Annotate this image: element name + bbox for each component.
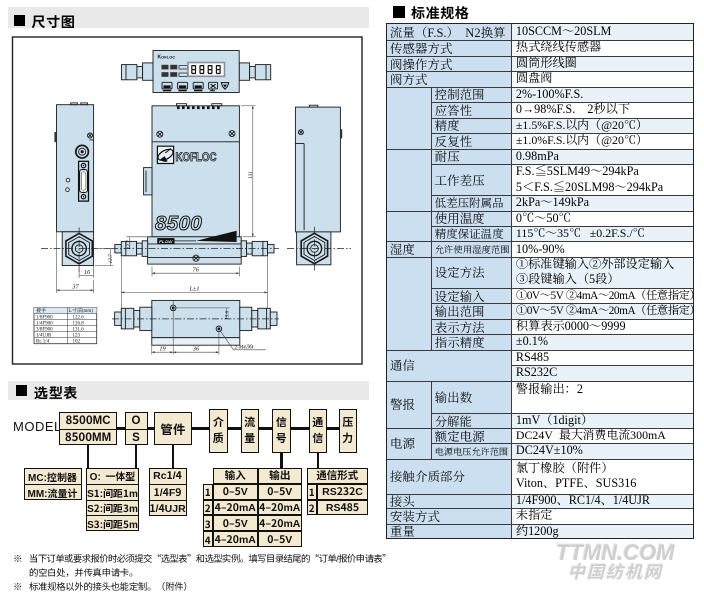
svg-text:12.7: 12.7	[126, 240, 132, 249]
svg-text:37: 37	[71, 283, 79, 290]
svg-text:12.7: 12.7	[108, 254, 114, 263]
svg-text:36: 36	[192, 345, 200, 352]
svg-text:接手: 接手	[36, 307, 46, 314]
svg-text:1/4F900: 1/4F900	[36, 321, 53, 326]
svg-text:131: 131	[248, 171, 254, 179]
svg-text:3/8F900: 3/8F900	[36, 327, 53, 332]
svg-text:122.6: 122.6	[73, 315, 85, 320]
svg-text:2-M4深4: 2-M4深4	[235, 343, 254, 350]
svg-text:76: 76	[193, 267, 200, 274]
svg-text:1/4UJR: 1/4UJR	[36, 333, 52, 338]
svg-text:L寸法(mm): L寸法(mm)	[69, 307, 93, 314]
svg-text:102: 102	[73, 340, 81, 345]
svg-text:8500: 8500	[155, 212, 202, 235]
svg-text:KOFLOC: KOFLOC	[176, 150, 217, 164]
svg-text:Rc 1/4: Rc 1/4	[36, 340, 50, 345]
svg-text:19: 19	[159, 345, 166, 352]
svg-text:131.6: 131.6	[73, 327, 85, 332]
svg-text:15.6: 15.6	[224, 310, 230, 319]
svg-text:FLOW: FLOW	[159, 239, 173, 244]
svg-text:126.8: 126.8	[73, 321, 85, 326]
svg-text:16: 16	[84, 269, 91, 276]
svg-text:1/8F900: 1/8F900	[36, 315, 53, 320]
svg-text:L±1: L±1	[188, 285, 199, 292]
svg-text:123: 123	[73, 333, 81, 338]
